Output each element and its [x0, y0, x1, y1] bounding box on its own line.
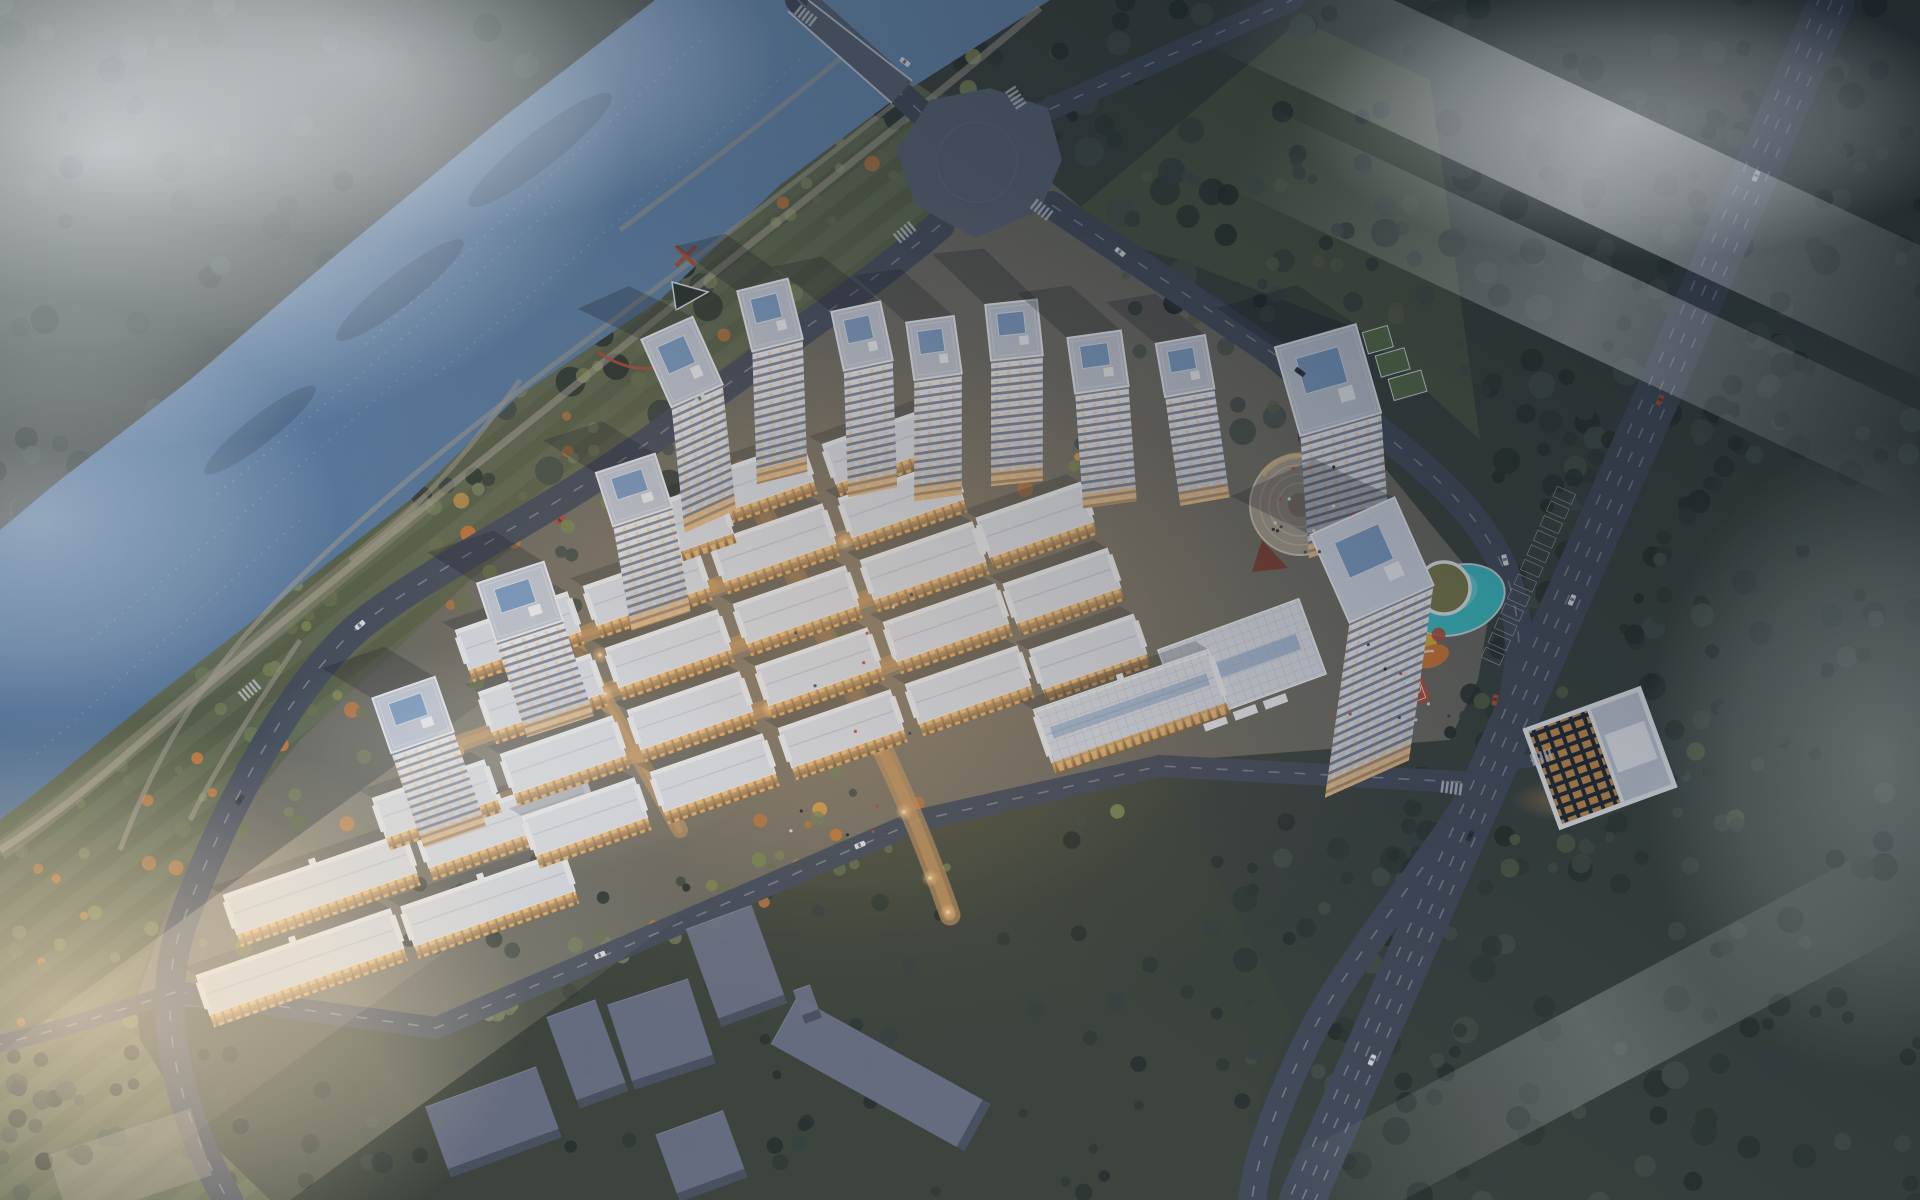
atmosphere-fog: [0, 0, 1920, 1200]
rendering-canvas: [0, 0, 1920, 1200]
aerial-architectural-rendering: [0, 0, 1920, 1200]
